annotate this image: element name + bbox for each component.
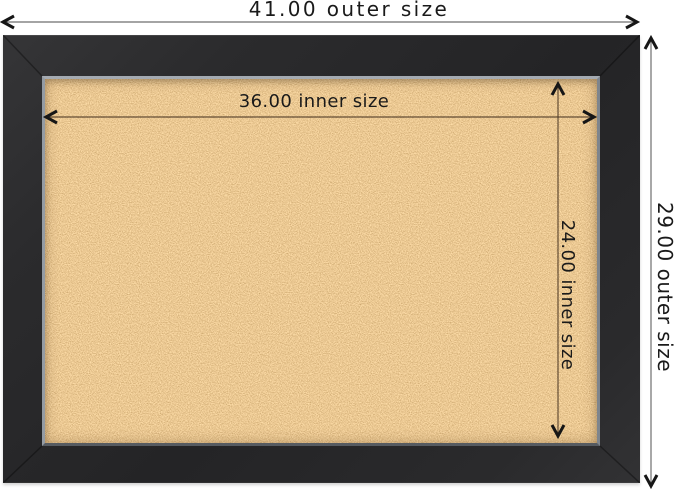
inner-width-label: 36.00 inner size <box>239 91 390 113</box>
cork-board-surface <box>45 79 597 443</box>
arrow-up-icon <box>645 38 657 49</box>
outer-height-label: 29.00 outer size <box>653 202 676 372</box>
frame-inner-lip <box>42 76 600 446</box>
product-dimension-diagram: 41.00 outer size 36.00 inner size 29.00 … <box>0 0 679 493</box>
inner-height-label: 24.00 inner size <box>557 220 578 371</box>
cork-texture <box>45 79 597 443</box>
arrow-down-icon <box>645 475 657 486</box>
outer-width-label: 41.00 outer size <box>249 0 449 21</box>
arrow-right-icon <box>626 16 637 28</box>
arrow-left-icon <box>3 16 14 28</box>
